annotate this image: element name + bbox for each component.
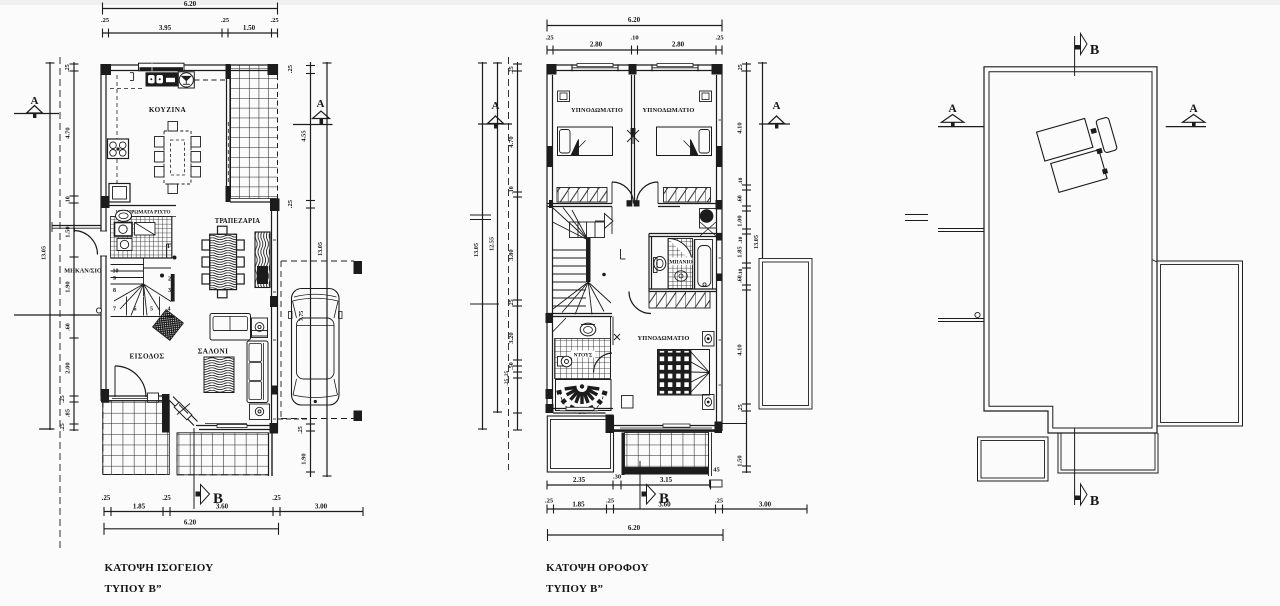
svg-text:7.75: 7.75 [299, 311, 305, 322]
svg-text:.25: .25 [287, 199, 294, 208]
svg-text:1.85: 1.85 [572, 501, 585, 509]
svg-text:13.05: 13.05 [41, 246, 48, 260]
svg-text:A: A [773, 100, 781, 112]
svg-text:13.05: 13.05 [753, 235, 760, 249]
svg-text:.25: .25 [221, 17, 230, 24]
svg-text:6: 6 [134, 307, 137, 313]
svg-text:ΥΠΝΟΔΩΜΑΤΙΟ: ΥΠΝΟΔΩΜΑΤΙΟ [642, 107, 694, 114]
svg-text:.25: .25 [545, 498, 554, 505]
svg-text:ΚΑΤΟΨΗ ΙΣΟΓΕΙΟΥ: ΚΑΤΟΨΗ ΙΣΟΓΕΙΟΥ [105, 562, 214, 574]
svg-text:ΤΥΠΟΥ Β”: ΤΥΠΟΥ Β” [546, 583, 603, 595]
svg-text:1.50: 1.50 [243, 24, 256, 32]
svg-text:13.05: 13.05 [473, 243, 480, 257]
svg-text:3.20: 3.20 [508, 332, 515, 343]
svg-text:.25: .25 [65, 64, 71, 72]
svg-text:4.70: 4.70 [508, 136, 515, 147]
svg-text:.25: .25 [162, 495, 171, 502]
svg-text:12.55: 12.55 [489, 237, 496, 251]
svg-text:3.15: 3.15 [660, 476, 673, 484]
svg-text:7: 7 [113, 307, 116, 313]
svg-text:3.80: 3.80 [508, 249, 515, 260]
svg-text:ΣΑΛΟΝΙ: ΣΑΛΟΝΙ [198, 348, 229, 356]
svg-text:2.00: 2.00 [65, 362, 72, 373]
svg-text:1.90: 1.90 [301, 453, 308, 464]
svg-text:A: A [1189, 103, 1198, 115]
svg-text:.10: .10 [66, 196, 72, 204]
svg-text:1.00: 1.00 [737, 215, 744, 226]
svg-text:1.85: 1.85 [737, 246, 744, 258]
svg-text:9: 9 [113, 276, 116, 282]
svg-text:45: 45 [713, 467, 720, 474]
svg-text:B: B [1090, 43, 1099, 58]
svg-text:.25: .25 [287, 64, 294, 73]
svg-text:A: A [317, 98, 325, 110]
svg-text:ΚΟΥΖΙΝΑ: ΚΟΥΖΙΝΑ [149, 106, 187, 114]
svg-text:1.85: 1.85 [133, 503, 146, 511]
svg-text:.60: .60 [738, 275, 744, 283]
svg-text:3.60: 3.60 [216, 503, 229, 511]
svg-text:2: 2 [168, 277, 171, 283]
svg-text:3: 3 [168, 288, 171, 294]
svg-text:.10: .10 [738, 177, 744, 184]
svg-text:ΤΡΑΠΕΖΑΡΙΑ: ΤΡΑΠΕΖΑΡΙΑ [215, 218, 261, 225]
svg-text:6.20: 6.20 [184, 0, 197, 8]
svg-text:.25: .25 [272, 495, 281, 502]
svg-text:ΚΑΤΟΨΗ ΟΡΟΦΟΥ: ΚΑΤΟΨΗ ΟΡΟΦΟΥ [546, 562, 649, 574]
svg-text:2.80: 2.80 [590, 41, 603, 49]
svg-text:2.35: 2.35 [573, 476, 586, 484]
svg-text:ΕΙΣΟΔΟΣ: ΕΙΣΟΔΟΣ [129, 353, 164, 361]
svg-text:.10: .10 [630, 35, 638, 42]
svg-text:3.95: 3.95 [159, 24, 172, 32]
svg-text:.10: .10 [738, 236, 744, 243]
svg-text:ΜΠΑΝΙΟ: ΜΠΑΝΙΟ [669, 260, 692, 266]
svg-text:.50: .50 [509, 362, 515, 370]
svg-text:ΜΗΚΑΝ/ΣΙΟ: ΜΗΚΑΝ/ΣΙΟ [64, 268, 102, 275]
svg-text:6.20: 6.20 [628, 524, 641, 532]
svg-text:8: 8 [113, 288, 116, 294]
svg-text:.25: .25 [298, 426, 304, 434]
svg-text:3.00: 3.00 [759, 501, 772, 509]
svg-text:13.05: 13.05 [317, 242, 324, 256]
svg-text:ΤΥΠΟΥ Β”: ΤΥΠΟΥ Β” [105, 583, 162, 595]
svg-text:5: 5 [150, 307, 153, 313]
svg-text:.25: .25 [738, 64, 744, 72]
svg-text:2.80: 2.80 [672, 41, 685, 49]
svg-text:.25: .25 [101, 17, 110, 24]
svg-text:1: 1 [167, 244, 170, 250]
svg-text:4.10: 4.10 [737, 344, 744, 355]
svg-text:.60: .60 [66, 323, 72, 331]
svg-text:.25: .25 [509, 299, 515, 307]
svg-text:4.70: 4.70 [65, 127, 72, 138]
svg-text:A: A [948, 103, 957, 115]
svg-text:ΝΤΟΥΣ: ΝΤΟΥΣ [574, 353, 593, 359]
svg-text:A: A [492, 100, 500, 112]
svg-text:.25: .25 [715, 498, 724, 505]
svg-text:.25: .25 [509, 66, 515, 74]
svg-text:.25: .25 [504, 378, 510, 385]
svg-text:3.00: 3.00 [315, 503, 328, 511]
svg-text:.85: .85 [65, 408, 72, 417]
svg-text:4.55: 4.55 [301, 130, 308, 142]
svg-text:10: 10 [113, 269, 119, 275]
svg-text:.25: .25 [545, 35, 554, 42]
svg-text:.25: .25 [715, 35, 724, 42]
svg-text:.25: .25 [738, 404, 744, 412]
svg-text:3.60: 3.60 [658, 501, 671, 509]
svg-text:.25: .25 [270, 17, 279, 24]
svg-text:ΥΠΝΟΔΩΜΑΤΙΟ: ΥΠΝΟΔΩΜΑΤΙΟ [571, 107, 623, 114]
svg-text:.25: .25 [60, 423, 66, 431]
svg-text:.25: .25 [606, 498, 615, 505]
svg-text:.10: .10 [738, 268, 744, 275]
svg-text:1.50: 1.50 [737, 455, 744, 466]
svg-text:.30: .30 [613, 474, 621, 481]
svg-text:.25: .25 [60, 395, 66, 403]
svg-text:ΥΠΝΟΔΩΜΑΤΙΟ: ΥΠΝΟΔΩΜΑΤΙΟ [637, 335, 689, 342]
svg-text:4.10: 4.10 [737, 122, 744, 133]
svg-text:.10: .10 [509, 186, 515, 194]
svg-text:.25: .25 [504, 370, 510, 377]
svg-text:6.20: 6.20 [628, 16, 641, 24]
svg-text:.25: .25 [102, 495, 111, 502]
svg-text:B: B [1090, 494, 1099, 509]
svg-text:1.90: 1.90 [65, 281, 72, 292]
svg-text:.60: .60 [738, 195, 744, 203]
svg-text:6.20: 6.20 [184, 519, 197, 527]
